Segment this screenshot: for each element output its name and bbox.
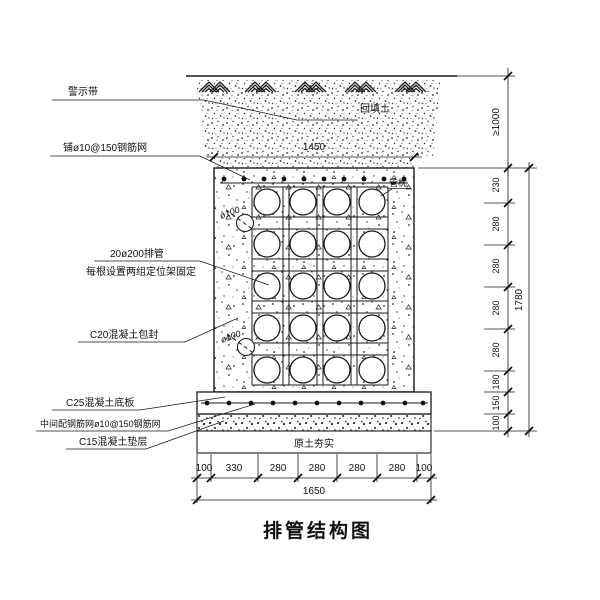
compacted-soil-label: 原土夯实 <box>294 437 334 450</box>
dim-bottom-seg-2: 280 <box>270 463 287 474</box>
pipe-circle <box>254 189 280 215</box>
pipe-circle <box>324 189 350 215</box>
pipe-circle <box>359 231 385 257</box>
pipe-circle <box>254 357 280 383</box>
dim-right-seg-6: 150 <box>491 395 501 410</box>
pipe-circle <box>359 357 385 383</box>
dim-bottom-seg-1: 330 <box>226 463 243 474</box>
pipe-circle <box>254 315 280 341</box>
dim-right-total-value: 1780 <box>514 288 525 311</box>
middle-rebar-mesh-label: 中间配钢筋网ø10@150钢筋网 <box>40 418 161 429</box>
pipe-bank-label: 20ø200排管 <box>110 247 164 260</box>
dim-bottom-total: 1650 <box>191 486 437 504</box>
cushion-layer <box>197 414 431 431</box>
dim-right-seg-3: 280 <box>491 300 501 315</box>
dim-right-seg-0: 230 <box>491 177 501 192</box>
dim-bottom-total-value: 1650 <box>303 486 326 497</box>
dim-right-seg-4: 280 <box>491 342 501 357</box>
pipe-circle <box>324 231 350 257</box>
dim-bottom-seg-5: 280 <box>389 463 406 474</box>
dim-bottom-seg-4: 280 <box>349 463 366 474</box>
encapsulation-label: C20混凝土包封 <box>90 328 158 341</box>
drawing-title: 排管结构图 <box>263 519 373 542</box>
dim-right-seg-1: 280 <box>491 216 501 231</box>
backfill-label: 回填土 <box>360 102 390 115</box>
dim-cover-depth: ≥1000 <box>491 68 512 176</box>
warning-tape-label: 警示带 <box>68 85 98 98</box>
dim-right-seg-2: 280 <box>491 258 501 273</box>
cushion-label: C15混凝土垫层 <box>79 435 147 448</box>
base-slab-label: C25混凝土底板 <box>66 396 134 409</box>
compacted-soil-band: 原土夯实 <box>197 431 431 453</box>
pipe-circle <box>324 273 350 299</box>
pipe-circle <box>359 189 385 215</box>
backfill-area <box>196 80 441 168</box>
pipe-circle <box>290 231 316 257</box>
pipe-circle <box>324 357 350 383</box>
duct-bank-structure-drawing: 回填土 1450 <box>0 0 600 600</box>
dim-right-seg-5: 180 <box>491 374 501 389</box>
pipe-circle <box>324 315 350 341</box>
pipe-pillow-label: 管枕 <box>389 177 407 188</box>
dim-cover-depth-value: ≥1000 <box>491 108 502 136</box>
dim-right-seg-7: 100 <box>491 415 501 430</box>
dim-bottom-seg-3: 280 <box>309 463 326 474</box>
pipe-circle <box>290 357 316 383</box>
dim-bottom-seg-0: 100 <box>196 463 213 474</box>
dim-bottom-seg-6: 100 <box>416 463 433 474</box>
pipe-circle <box>290 273 316 299</box>
pipe-circle <box>359 315 385 341</box>
pipe-circle <box>290 315 316 341</box>
dim-top-width-value: 1450 <box>303 142 326 153</box>
pipe-circle <box>254 231 280 257</box>
pipe-circle <box>290 189 316 215</box>
drawing-svg: 回填土 1450 <box>0 0 600 600</box>
pipe-circle <box>254 273 280 299</box>
pipe-bank-note-label: 每根设置两组定位架固定 <box>86 265 196 278</box>
pipe-circle <box>359 273 385 299</box>
top-rebar-mesh-label: 铺ø10@150钢筋网 <box>63 141 147 154</box>
dim-right-total: 1780 <box>514 162 533 437</box>
